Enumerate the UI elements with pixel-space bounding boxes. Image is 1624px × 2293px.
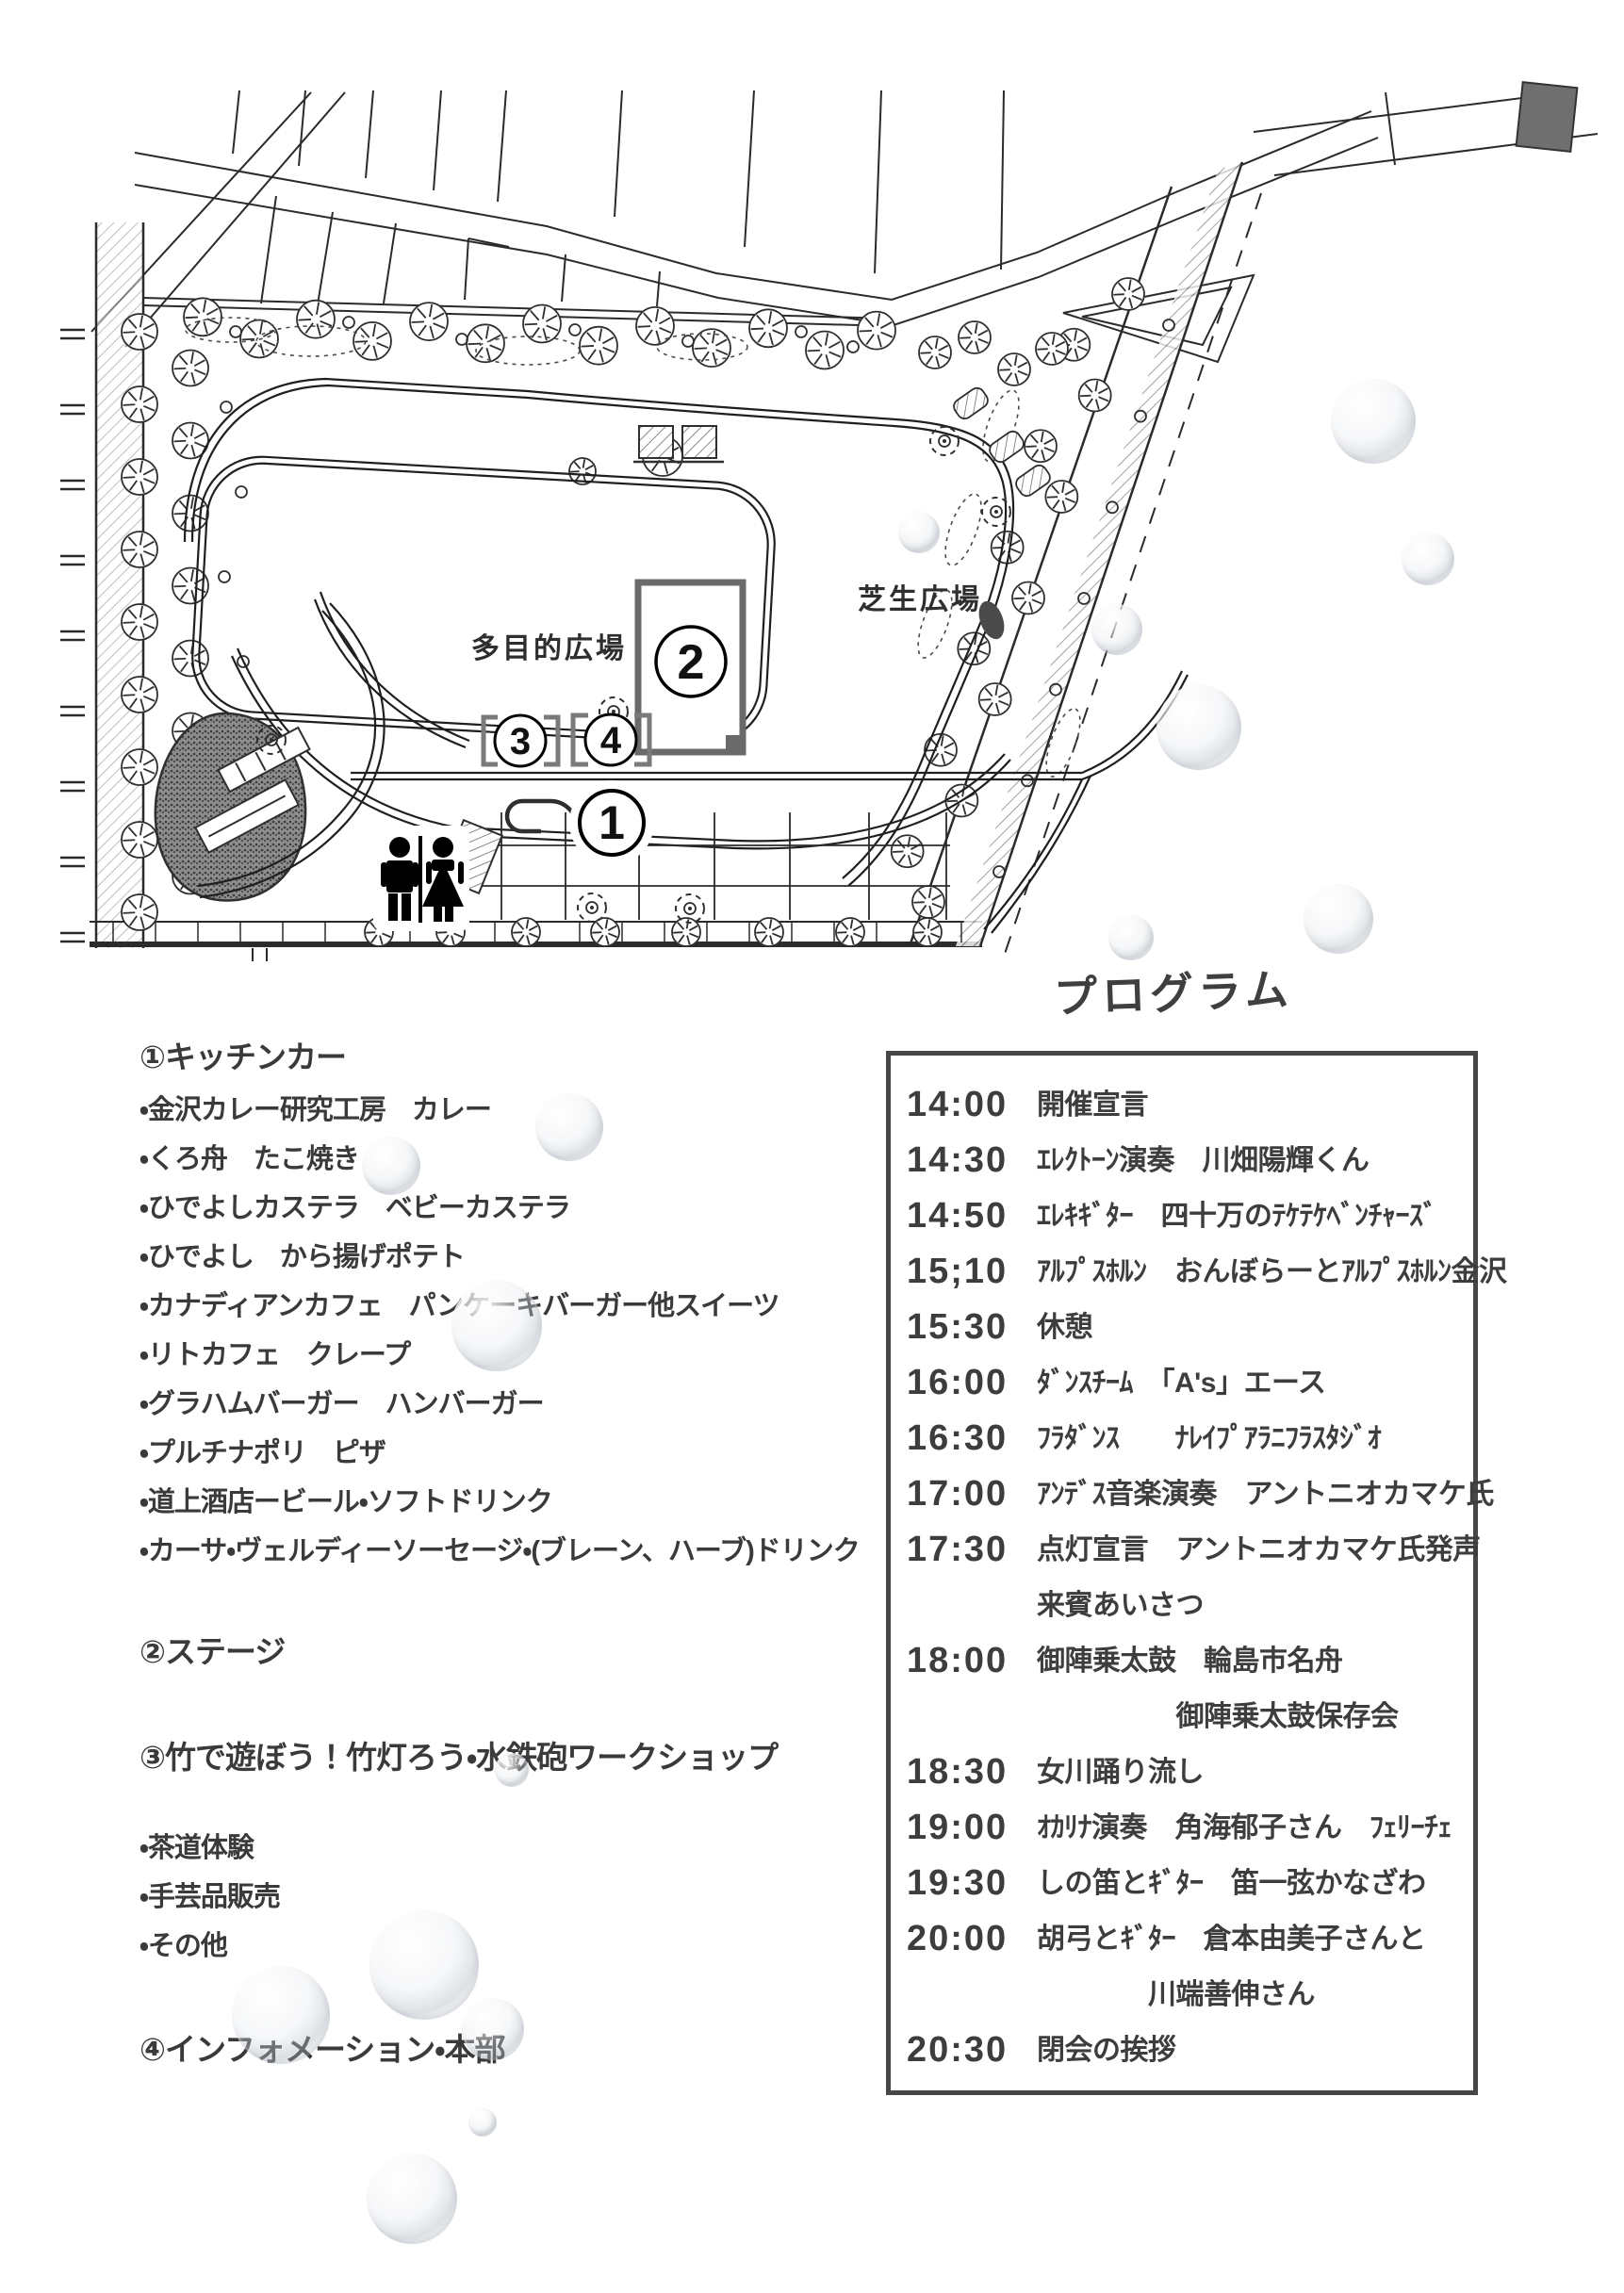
bubble-icon [535,1093,603,1161]
shrub-circle-icon [847,341,859,352]
site-map: 多目的広場 芝生広場 2 3 [0,0,1624,961]
program-activity: ｱﾙﾌﾟｽﾎﾙﾝ おんぼらーとｱﾙﾌﾟｽﾎﾙﾝ金沢 [1037,1244,1507,1300]
bubble-icon [1156,685,1241,770]
tree-icon [122,677,157,712]
program-activity: しの笛とｷﾞﾀｰ 笛一弦かなざわ [1037,1856,1426,1911]
legend-heading: ①キッチンカー [139,1035,860,1080]
multi-purpose-plaza-label: 多目的広場 [471,633,627,664]
tree-icon [410,303,448,340]
shrub-circle-icon [682,336,694,347]
bubble-icon [495,1753,529,1787]
program-activity: 女川踊り流し [1037,1744,1204,1800]
shrub-circle-icon [219,571,230,582]
list-item: ・ひでよし から揚げポテト [139,1233,860,1282]
tree-icon [836,918,864,946]
bubble-icon [1304,884,1373,954]
list-item: ・茶道体験 [139,1824,778,1873]
bubble-icon [232,1966,330,2064]
shrub-circle-icon [343,317,354,328]
shrub-circle-icon [236,486,247,498]
tree-icon [122,459,157,495]
list-item: ・プルチナポリ ピザ [139,1429,860,1478]
program-row: 14:30 ｴﾚｸﾄｰﾝ演奏 川畑陽輝くん [907,1133,1510,1188]
tree-icon [912,886,944,918]
tree-icon [523,305,561,343]
tree-icon [122,822,157,858]
program-time: 17:30 [907,1522,1027,1578]
shrub-circle-icon [221,401,232,413]
program-time [907,1578,1027,1633]
program-row: 14:50 ｴﾚｷｷﾞﾀｰ 四十万のﾃｹﾃｹﾍﾞﾝﾁｬｰｽﾞ [907,1188,1510,1244]
tree-icon [1025,430,1057,462]
tree-icon [122,749,157,785]
program-activity: 来賓あいさつ [1037,1578,1204,1633]
program-time: 18:00 [907,1633,1027,1689]
list-item: ・くろ舟 たこ焼き [139,1135,860,1184]
program-activity: 開催宣言 [1037,1077,1148,1133]
program-time: 18:30 [907,1744,1027,1800]
program-row: 16:00 ﾀﾞﾝｽﾁｰﾑ 「A's」エース [907,1355,1510,1411]
program-activity: ﾀﾞﾝｽﾁｰﾑ 「A's」エース [1037,1355,1325,1411]
tree-icon [749,309,787,347]
program-activity: 御陣乗太鼓保存会 [1037,1689,1399,1744]
bubble-icon [367,2154,457,2244]
marker-2: 2 [678,635,705,690]
bubble-icon [1091,604,1142,655]
tree-icon [591,918,619,946]
bubble-icon [1108,915,1154,960]
program-activity: 川端善伸さん [1037,1967,1315,2023]
tree-icon [184,298,221,336]
program-row: 18:00 御陣乗太鼓 輪島市名舟 [907,1633,1510,1689]
marker-stage: 2 [638,582,743,752]
tree-icon [297,301,335,338]
event-flyer: { "colors": { "ink": "#3a3a3a", "map_lin… [0,0,1624,2293]
marker-3: 3 [510,721,531,762]
tree-icon [467,324,504,362]
list-item: ・金沢カレー研究工房 カレー [139,1086,860,1135]
program-activity: ｱﾝﾃﾞｽ音楽演奏 アントニオカマケ氏 [1037,1466,1494,1522]
shrub-circle-icon [796,326,807,337]
lawn-plaza-label: 芝生広場 [858,584,982,615]
program-row: 17:30 点灯宣言 アントニオカマケ氏発声 [907,1522,1510,1578]
tree-icon [998,353,1030,385]
program-row: 川端善伸さん [907,1967,1510,2023]
bubble-icon [1331,379,1416,464]
program-time: 19:00 [907,1800,1027,1856]
program-activity: ﾌﾗﾀﾞﾝｽ ﾅﾚｲﾌﾟｱﾗﾆﾌﾗｽﾀｼﾞｵ [1037,1411,1381,1466]
tree-icon [892,835,924,867]
fountain-icon [930,427,959,455]
bubble-icon [468,2108,497,2137]
program-title: プログラム [1053,956,1294,1026]
program-activity: ｴﾚｸﾄｰﾝ演奏 川畑陽輝くん [1037,1133,1370,1188]
program-activity: 閉会の挨拶 [1037,2023,1176,2078]
legend-heading: ③竹で遊ぼう！竹灯ろう・水鉄砲ワークショップ [139,1735,778,1780]
program-time: 15:30 [907,1300,1027,1355]
bubble-icon [462,1998,524,2060]
tree-icon [580,327,617,365]
program-row: 14:00 開催宣言 [907,1077,1510,1133]
bubble-icon [451,1281,542,1371]
program-time: 19:30 [907,1856,1027,1911]
sidewalk-marks [90,948,952,961]
tree-icon [636,307,674,345]
tree-icon [122,894,157,930]
tree-icon [122,314,157,350]
marker-4: 4 [600,720,622,762]
tree-icon [353,322,391,360]
program-row: 20:00 胡弓とｷﾞﾀｰ 倉本由美子さんと [907,1911,1510,1967]
tree-icon [1112,278,1144,310]
list-item: ・手芸品販売 [139,1873,778,1922]
tree-icon [122,604,157,640]
list-item: ・カーサ・ヴェルディーソーセージ・(ブレーン、ハーブ)ドリンク [139,1527,860,1576]
program-row: 15;10 ｱﾙﾌﾟｽﾎﾙﾝ おんぼらーとｱﾙﾌﾟｽﾎﾙﾝ金沢 [907,1244,1510,1300]
program-time: 16:30 [907,1411,1027,1466]
tree-icon [1036,333,1068,365]
tree-icon [806,332,844,369]
legend-heading: ②ステージ [139,1630,285,1675]
program-time: 20:00 [907,1911,1027,1967]
program-row: 16:30 ﾌﾗﾀﾞﾝｽ ﾅﾚｲﾌﾟｱﾗﾆﾌﾗｽﾀｼﾞｵ [907,1411,1510,1466]
program-time: 16:00 [907,1355,1027,1411]
tree-icon [858,312,895,350]
program-time: 14:00 [907,1077,1027,1133]
list-item: ・道上酒店ービール・ソフトドリンク [139,1478,860,1527]
program-schedule: 14:00 開催宣言 14:30 ｴﾚｸﾄｰﾝ演奏 川畑陽輝くん 14:50 ｴ… [907,1077,1510,2078]
program-row: 17:00 ｱﾝﾃﾞｽ音楽演奏 アントニオカマケ氏 [907,1466,1510,1522]
restroom-icon [373,826,469,931]
fountain-icon [578,893,606,922]
list-item: ・グラハムバーガー ハンバーガー [139,1380,860,1429]
bubble-icon [898,512,940,553]
bubble-icon [1402,532,1454,585]
program-activity: ｴﾚｷｷﾞﾀｰ 四十万のﾃｹﾃｹﾍﾞﾝﾁｬｰｽﾞ [1037,1188,1437,1244]
program-row: 19:00 ｵｶﾘﾅ演奏 角海郁子さん ﾌｪﾘｰﾁｪ [907,1800,1510,1856]
program-row: 20:30 閉会の挨拶 [907,2023,1510,2078]
program-row: 御陣乗太鼓保存会 [907,1689,1510,1744]
program-activity: ｵｶﾘﾅ演奏 角海郁子さん ﾌｪﾘｰﾁｪ [1037,1800,1452,1856]
program-row: 18:30 女川踊り流し [907,1744,1510,1800]
shrub-circle-icon [456,334,468,345]
tree-icon [959,321,991,353]
tree-icon [122,386,157,422]
tree-icon [512,918,540,946]
program-row: 15:30 休憩 [907,1300,1510,1355]
marker-1: 1 [599,796,625,849]
program-time [907,1689,1027,1744]
marker-kitchen-car: 1 [569,780,654,865]
tree-icon [122,532,157,567]
legend-stage: ②ステージ [139,1630,285,1675]
tree-icon [1012,582,1044,614]
program-row: 19:30 しの笛とｷﾞﾀｰ 笛一弦かなざわ [907,1856,1510,1911]
tree-icon [979,683,1011,715]
shrub-circle-icon [569,324,581,336]
program-time: 15;10 [907,1244,1027,1300]
tree-icon [172,641,208,677]
program-activity: 御陣乗太鼓 輪島市名舟 [1037,1633,1343,1689]
program-row: 来賓あいさつ [907,1578,1510,1633]
program-time: 14:50 [907,1188,1027,1244]
tree-icon [919,336,951,369]
program-time [907,1967,1027,2023]
program-time: 14:30 [907,1133,1027,1188]
program-time: 20:30 [907,2023,1027,2078]
program-activity: 休憩 [1037,1300,1092,1355]
tree-icon [1079,380,1111,412]
parking-band [113,918,961,946]
tree-icon [172,351,208,386]
bubble-icon [369,1910,479,2020]
bubble-icon [362,1137,420,1195]
tree-icon [755,918,783,946]
program-activity: 点灯宣言 アントニオカマケ氏発声 [1037,1522,1481,1578]
program-time: 17:00 [907,1466,1027,1522]
tree-icon [913,918,942,946]
program-activity: 胡弓とｷﾞﾀｰ 倉本由美子さんと [1037,1911,1426,1967]
shrub-circle-icon [230,326,241,337]
tree-icon [1045,481,1077,513]
marker-workshop: 3 [484,715,558,766]
list-item: ・ひでよしカステラ ベビーカステラ [139,1184,860,1233]
